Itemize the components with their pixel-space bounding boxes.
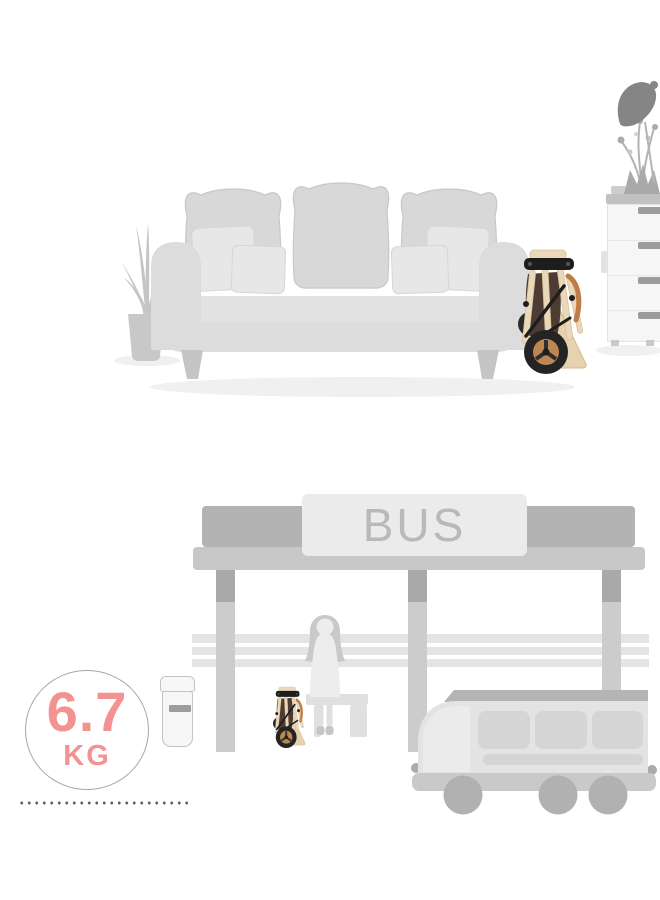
weight-unit: KG [63,740,111,773]
desk-lamp-icon [612,78,660,193]
sofa-shadow [150,377,575,397]
weight-badge-icon: 6.7 KG [25,670,149,790]
drawer-divider [608,275,660,276]
bus-windows [478,711,643,749]
bench-support-right [350,705,367,737]
folded-stroller-icon-large [516,248,592,378]
drawer-handle [638,312,660,319]
drawer-divider [608,240,660,241]
person-shoe [317,726,325,735]
shelter-post-cap [602,570,621,602]
bus-stripe [483,754,643,765]
drawer-handle [638,242,660,249]
sofa-seat [176,296,504,322]
trash-bin-icon [162,691,193,747]
folded-stroller-icon-small [272,686,308,750]
lamp-arm [645,122,654,183]
dotted-line-icon [18,800,188,806]
bus-icon [410,688,658,816]
sofa-leg-left [181,350,203,379]
dresser-leg [646,340,654,346]
drawer-handle [638,277,660,284]
person-leg [327,697,333,726]
stroller-weight-infographic: BUS [0,0,660,900]
dresser-shadow [596,345,660,356]
bus-roof [444,690,648,702]
trash-bin-lid [160,676,195,692]
person-shoe [326,726,334,735]
drawer-divider [608,310,660,311]
waiting-person-icon [304,614,346,738]
shelter-post-cap [408,570,427,602]
drawer-handle [638,207,660,214]
sofa-arm-left [151,242,201,350]
drawer-chest-icon [607,204,660,342]
weight-value: 6.7 [47,687,128,737]
lamp-knob [650,81,658,89]
lamp-head [618,82,656,126]
dresser-leg [611,340,619,346]
shelter-post-cap [216,570,235,602]
trash-bin-slot [169,705,191,712]
bus-sign: BUS [302,494,527,556]
person-head [317,619,334,636]
person-leg [318,697,324,726]
bus-sign-label: BUS [363,498,467,552]
sofa-icon [150,180,530,380]
sofa-leg-right [477,350,499,379]
